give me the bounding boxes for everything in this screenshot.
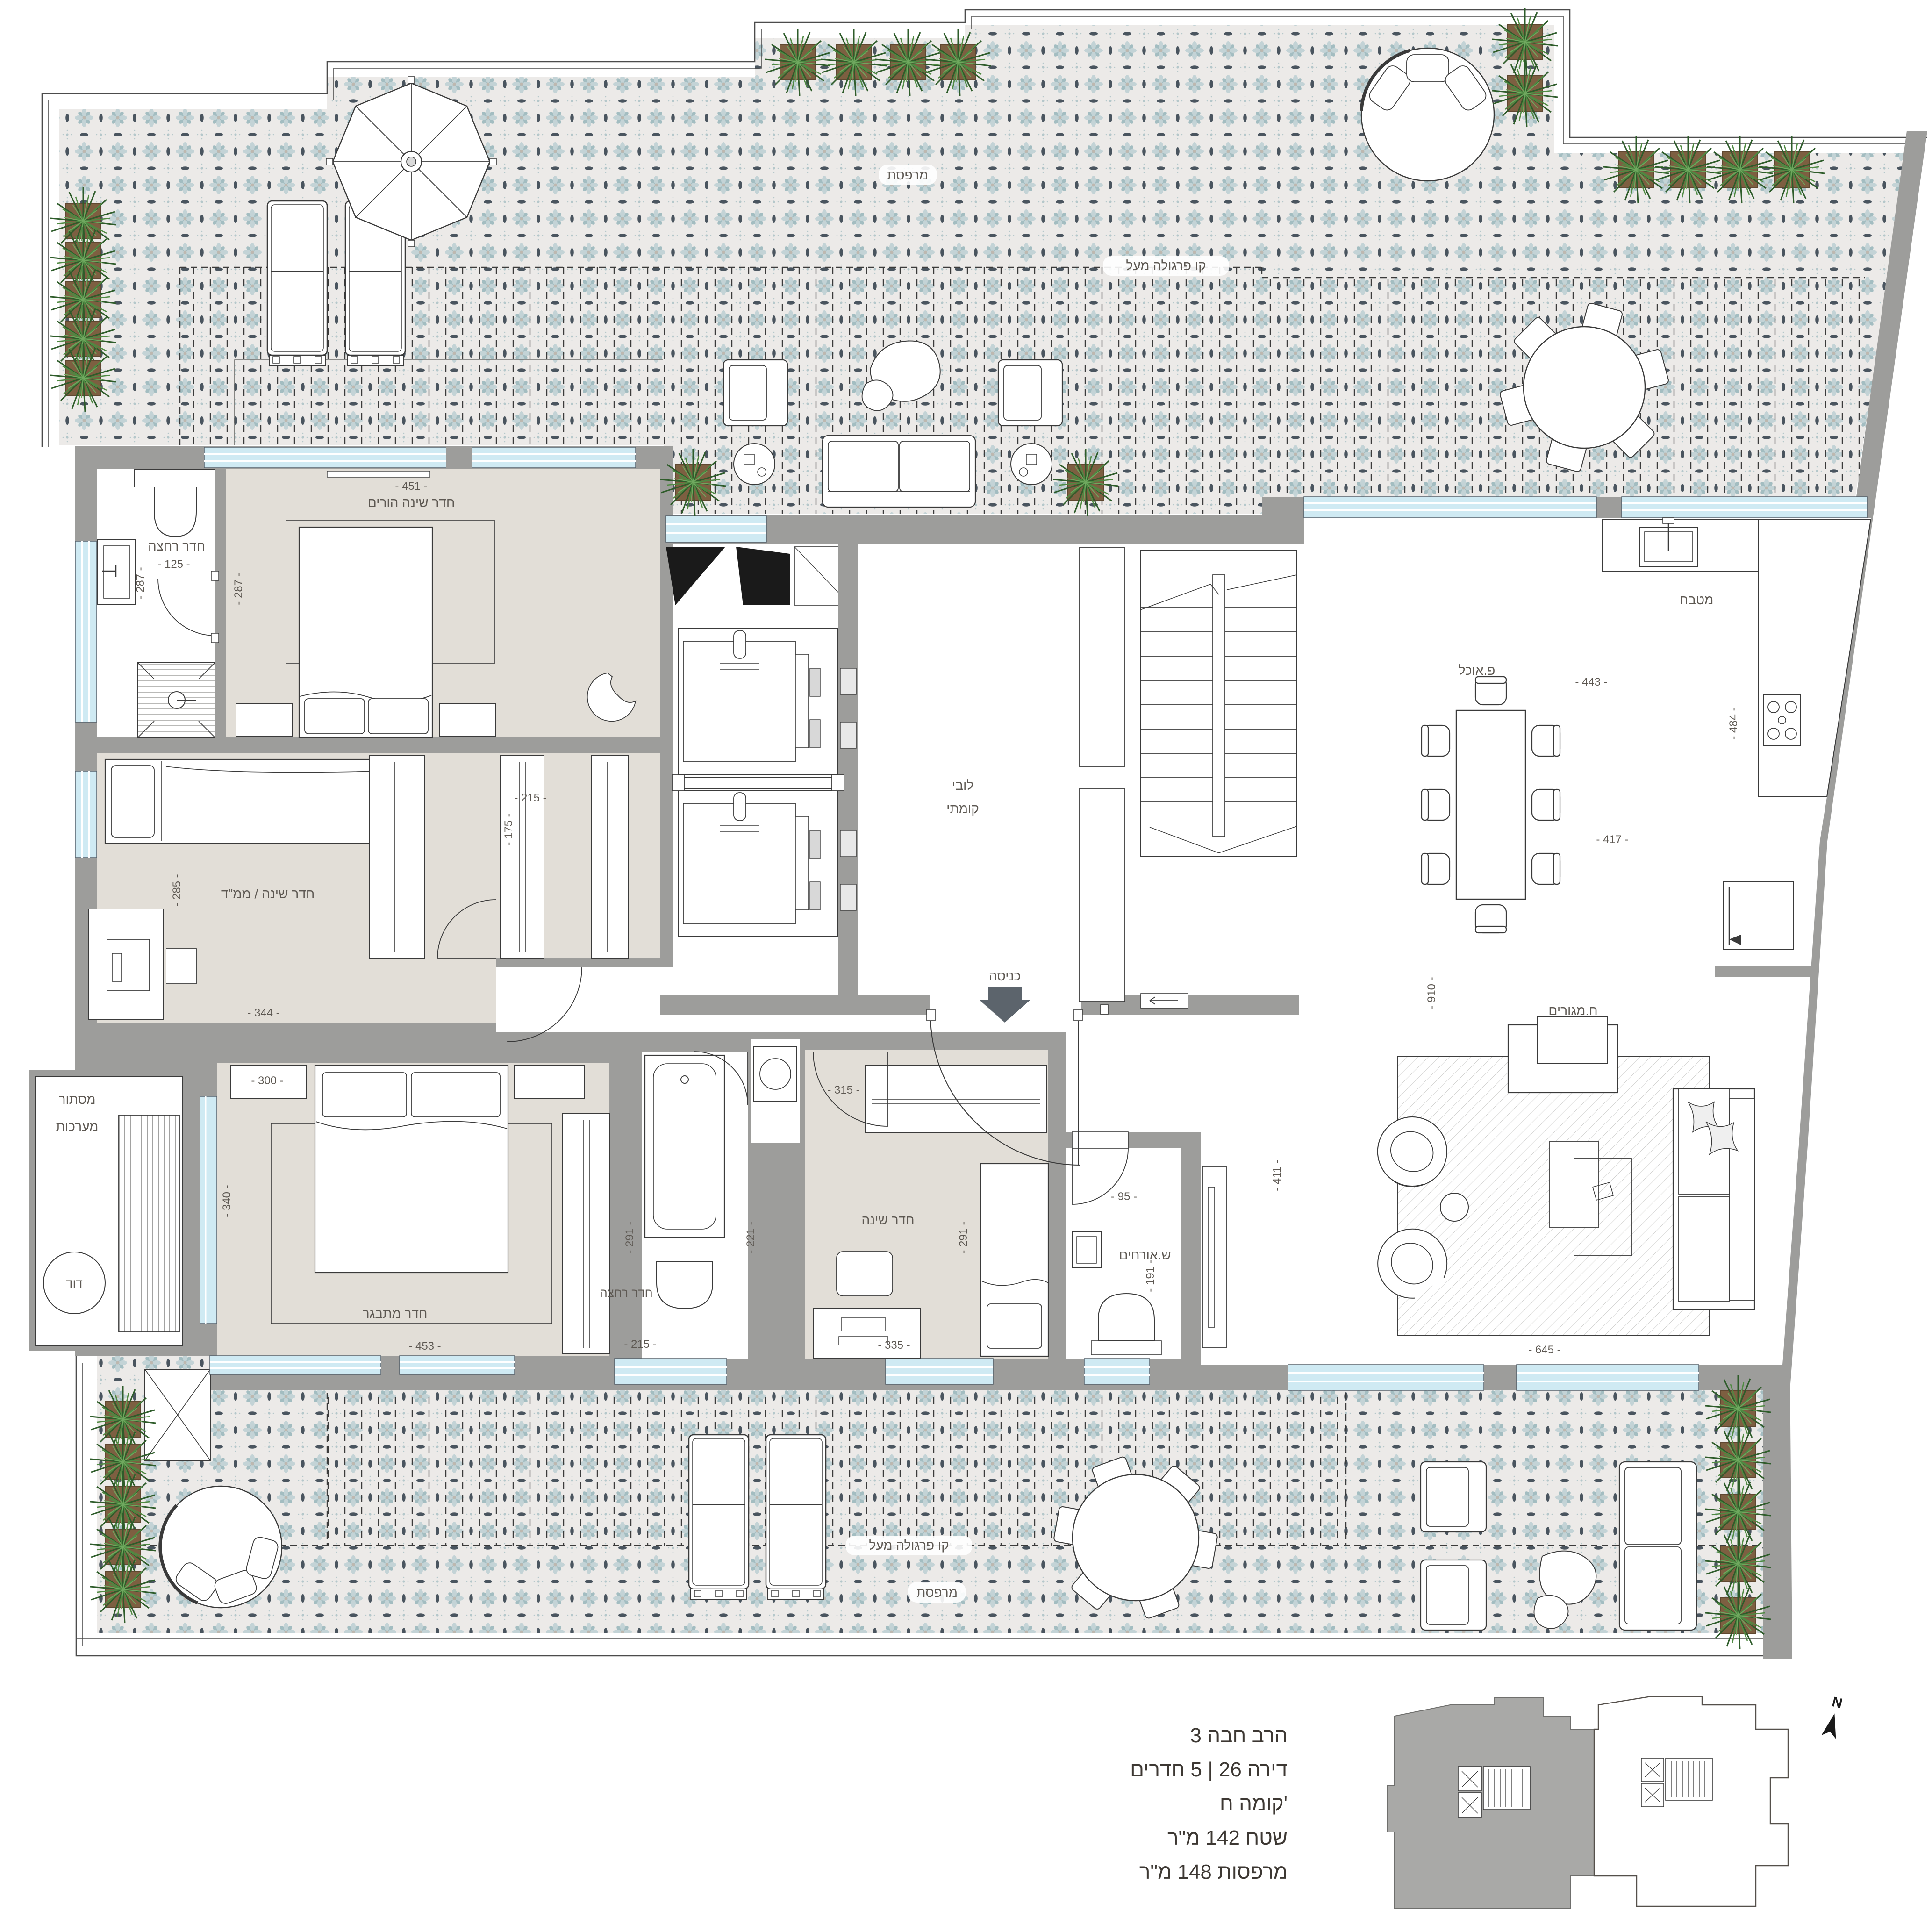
svg-text:- 95 -: - 95 -	[1111, 1190, 1137, 1203]
svg-text:הרב חבה 3: הרב חבה 3	[1190, 1724, 1288, 1747]
svg-text:- 451 -: - 451 -	[395, 480, 427, 493]
svg-text:חדר מתבגר: חדר מתבגר	[363, 1306, 428, 1321]
svg-text:- 291 -: - 291 -	[623, 1221, 636, 1253]
svg-text:- 340 -: - 340 -	[221, 1185, 233, 1217]
svg-text:- 417 -: - 417 -	[1596, 833, 1628, 846]
svg-text:מטבח: מטבח	[1680, 593, 1714, 607]
svg-text:- 910 -: - 910 -	[1425, 977, 1438, 1009]
svg-text:מרפסת: מרפסת	[916, 1585, 958, 1600]
svg-text:ח.מגורים: ח.מגורים	[1548, 1003, 1597, 1018]
svg-text:דירה 26 | 5 חדרים: דירה 26 | 5 חדרים	[1130, 1758, 1288, 1781]
svg-text:מרפסת: מרפסת	[887, 168, 928, 182]
svg-text:חדר שינה / ממ"ד: חדר שינה / ממ"ד	[221, 887, 315, 901]
svg-text:- 191 -: - 191 -	[1144, 1259, 1157, 1292]
svg-text:שטח 142 מ"ר: שטח 142 מ"ר	[1167, 1826, 1288, 1849]
svg-text:- 484 -: - 484 -	[1727, 707, 1740, 739]
svg-text:- 287 -: - 287 -	[232, 572, 245, 605]
svg-text:- 443 -: - 443 -	[1575, 676, 1607, 688]
svg-text:- 285 -: - 285 -	[171, 874, 183, 906]
svg-text:- 315 -: - 315 -	[827, 1084, 859, 1096]
svg-text:קומתי: קומתי	[946, 801, 979, 816]
svg-text:- 215 -: - 215 -	[624, 1338, 656, 1351]
svg-text:קו פרגולה מעל: קו פרגולה מעל	[1126, 258, 1206, 273]
svg-text:- 291 -: - 291 -	[957, 1221, 970, 1253]
svg-text:- 411 -: - 411 -	[1271, 1159, 1283, 1191]
svg-text:קו פרגולה מעל: קו פרגולה מעל	[869, 1538, 949, 1553]
svg-text:דוד: דוד	[66, 1276, 83, 1290]
svg-text:חדר שינה: חדר שינה	[861, 1213, 914, 1227]
svg-text:- 175 -: - 175 -	[502, 813, 515, 845]
svg-text:- 300 -: - 300 -	[251, 1074, 283, 1087]
svg-text:מערכות: מערכות	[56, 1119, 99, 1134]
svg-text:לובי: לובי	[952, 778, 973, 793]
svg-text:כניסה: כניסה	[989, 969, 1021, 983]
svg-text:מרפסות 148 מ"ר: מרפסות 148 מ"ר	[1139, 1860, 1288, 1883]
svg-text:- 344 -: - 344 -	[247, 1007, 279, 1019]
svg-text:- 645 -: - 645 -	[1528, 1344, 1560, 1356]
svg-text:- 335 -: - 335 -	[878, 1339, 910, 1352]
svg-text:קומה ח': קומה ח'	[1220, 1792, 1288, 1815]
svg-text:פ.אוכל: פ.אוכל	[1459, 663, 1496, 678]
svg-text:מסתור: מסתור	[59, 1092, 96, 1107]
svg-text:חדר שינה הורים: חדר שינה הורים	[368, 495, 455, 510]
svg-text:חדר רחצה: חדר רחצה	[600, 1286, 653, 1300]
svg-text:- 453 -: - 453 -	[408, 1340, 441, 1352]
svg-text:- 125 -: - 125 -	[157, 558, 190, 571]
svg-text:חדר רחצה: חדר רחצה	[148, 539, 205, 553]
svg-text:- 215 -: - 215 -	[514, 792, 546, 804]
svg-text:- 287 -: - 287 -	[134, 567, 147, 599]
svg-text:- 221 -: - 221 -	[744, 1221, 757, 1253]
